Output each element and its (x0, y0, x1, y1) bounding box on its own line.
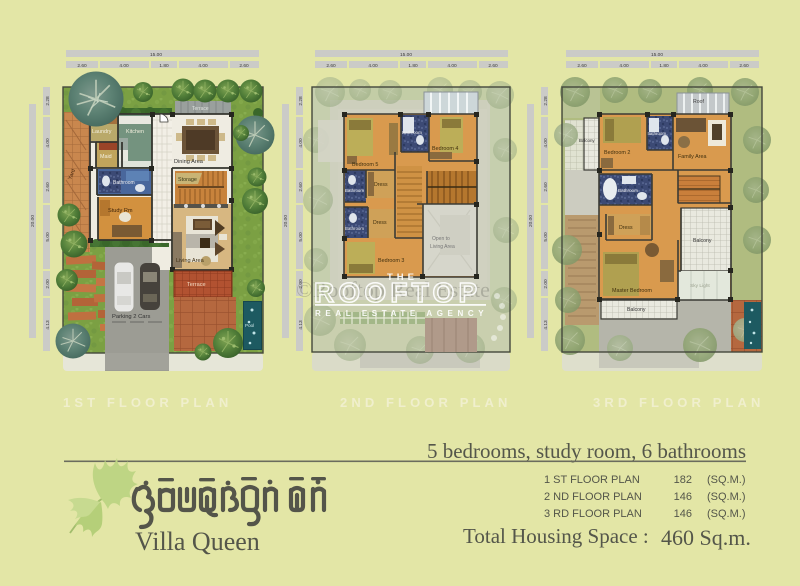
svg-text:Study Rm: Study Rm (108, 208, 133, 214)
svg-text:2.00: 2.00 (543, 279, 549, 289)
svg-text:2ND FLOOR PLAN: 2ND FLOOR PLAN (340, 395, 512, 410)
svg-text:146: 146 (674, 491, 692, 503)
svg-text:Balcony: Balcony (693, 238, 712, 244)
svg-text:4.00: 4.00 (543, 138, 549, 148)
svg-text:Open to: Open to (432, 236, 450, 242)
svg-text:3RD FLOOR PLAN: 3RD FLOOR PLAN (593, 395, 765, 410)
svg-text:4.13: 4.13 (543, 320, 549, 330)
svg-text:4.00: 4.00 (368, 63, 378, 69)
svg-text:ROOFTOP: ROOFTOP (314, 277, 481, 308)
svg-text:(SQ.M.): (SQ.M.) (707, 508, 746, 520)
svg-text:20.00: 20.00 (528, 215, 534, 227)
svg-text:5.00: 5.00 (298, 232, 304, 242)
svg-text:2.28: 2.28 (543, 96, 549, 106)
svg-text:Maid: Maid (100, 154, 112, 160)
svg-text:4.13: 4.13 (45, 320, 51, 330)
svg-text:Pool: Pool (245, 323, 254, 328)
svg-text:20.00: 20.00 (283, 215, 289, 227)
svg-text:Dress: Dress (374, 182, 388, 188)
svg-text:(SQ.M.): (SQ.M.) (707, 474, 746, 486)
svg-text:Bedroom 5: Bedroom 5 (352, 162, 378, 168)
svg-text:4.00: 4.00 (698, 63, 708, 69)
svg-text:Bathroom: Bathroom (113, 180, 135, 186)
svg-text:2 ND FLOOR PLAN: 2 ND FLOOR PLAN (544, 491, 642, 503)
svg-text:Villa Queen: Villa Queen (135, 527, 260, 556)
svg-text:Bedroom 2: Bedroom 2 (604, 150, 630, 156)
svg-text:Master Bedroom: Master Bedroom (612, 288, 652, 294)
svg-text:(SQ.M.): (SQ.M.) (707, 491, 746, 503)
svg-text:Bathroom: Bathroom (345, 188, 364, 193)
svg-text:15.00: 15.00 (400, 52, 412, 58)
svg-text:4.00: 4.00 (198, 63, 208, 69)
svg-text:460 Sq.m.: 460 Sq.m. (661, 525, 751, 550)
svg-text:2.60: 2.60 (326, 63, 336, 69)
svg-text:REAL ESTATE AGENCY: REAL ESTATE AGENCY (315, 309, 488, 318)
svg-text:182: 182 (674, 474, 692, 486)
svg-text:5.00: 5.00 (45, 232, 51, 242)
svg-text:2.60: 2.60 (739, 63, 749, 69)
svg-text:Bathroom: Bathroom (345, 226, 364, 231)
svg-text:Balcony: Balcony (579, 138, 595, 143)
svg-text:2.60: 2.60 (239, 63, 249, 69)
svg-text:Parking 2 Cars: Parking 2 Cars (112, 314, 150, 320)
svg-text:15.00: 15.00 (651, 52, 663, 58)
svg-text:Dining Area: Dining Area (174, 159, 204, 165)
svg-text:146: 146 (674, 508, 692, 520)
svg-text:2.28: 2.28 (45, 96, 51, 106)
svg-text:Laundry: Laundry (92, 129, 112, 135)
svg-text:Total Housing Space :: Total Housing Space : (463, 524, 649, 548)
svg-text:Bathroom: Bathroom (402, 130, 422, 135)
svg-text:1.80: 1.80 (159, 63, 169, 69)
svg-text:Roof: Roof (693, 99, 705, 105)
svg-text:Dress: Dress (373, 220, 387, 226)
svg-text:Dress: Dress (619, 225, 633, 231)
svg-text:2.60: 2.60 (488, 63, 498, 69)
svg-text:Balcony: Balcony (627, 307, 646, 313)
svg-text:2.60: 2.60 (298, 182, 304, 192)
svg-text:4.13: 4.13 (298, 320, 304, 330)
svg-text:2.60: 2.60 (45, 182, 51, 192)
svg-text:Bathroom: Bathroom (618, 188, 638, 193)
svg-text:Living Area: Living Area (176, 258, 205, 264)
svg-text:Living Area: Living Area (430, 244, 455, 250)
svg-text:1.80: 1.80 (659, 63, 669, 69)
svg-text:5.00: 5.00 (543, 232, 549, 242)
svg-text:Family Area: Family Area (678, 154, 706, 160)
svg-text:2.60: 2.60 (77, 63, 87, 69)
svg-text:Bedroom 3: Bedroom 3 (378, 258, 404, 264)
svg-text:Terrace: Terrace (187, 282, 206, 288)
svg-text:2.00: 2.00 (45, 279, 51, 289)
svg-text:4.00: 4.00 (447, 63, 457, 69)
svg-text:Kitchen: Kitchen (126, 129, 144, 135)
svg-text:Sky Light: Sky Light (690, 283, 710, 289)
svg-text:2.60: 2.60 (577, 63, 587, 69)
svg-text:1.80: 1.80 (408, 63, 418, 69)
svg-text:2.60: 2.60 (543, 182, 549, 192)
svg-text:15.00: 15.00 (150, 52, 162, 58)
svg-text:20.00: 20.00 (30, 215, 36, 227)
svg-text:4.00: 4.00 (298, 138, 304, 148)
svg-text:Bathroom: Bathroom (647, 131, 666, 136)
svg-text:4.00: 4.00 (619, 63, 629, 69)
svg-text:2.28: 2.28 (298, 96, 304, 106)
svg-text:1 ST FLOOR PLAN: 1 ST FLOOR PLAN (544, 474, 640, 486)
svg-text:4.00: 4.00 (119, 63, 129, 69)
svg-text:5 bedrooms, study room, 6 bath: 5 bedrooms, study room, 6 bathrooms (427, 439, 746, 463)
svg-text:4.00: 4.00 (45, 138, 51, 148)
svg-text:1ST FLOOR PLAN: 1ST FLOOR PLAN (63, 395, 232, 410)
svg-text:3 RD FLOOR PLAN: 3 RD FLOOR PLAN (544, 508, 642, 520)
svg-text:Bedroom 4: Bedroom 4 (432, 146, 458, 152)
svg-text:Terrace: Terrace (192, 106, 209, 112)
svg-text:Storage: Storage (178, 177, 197, 183)
